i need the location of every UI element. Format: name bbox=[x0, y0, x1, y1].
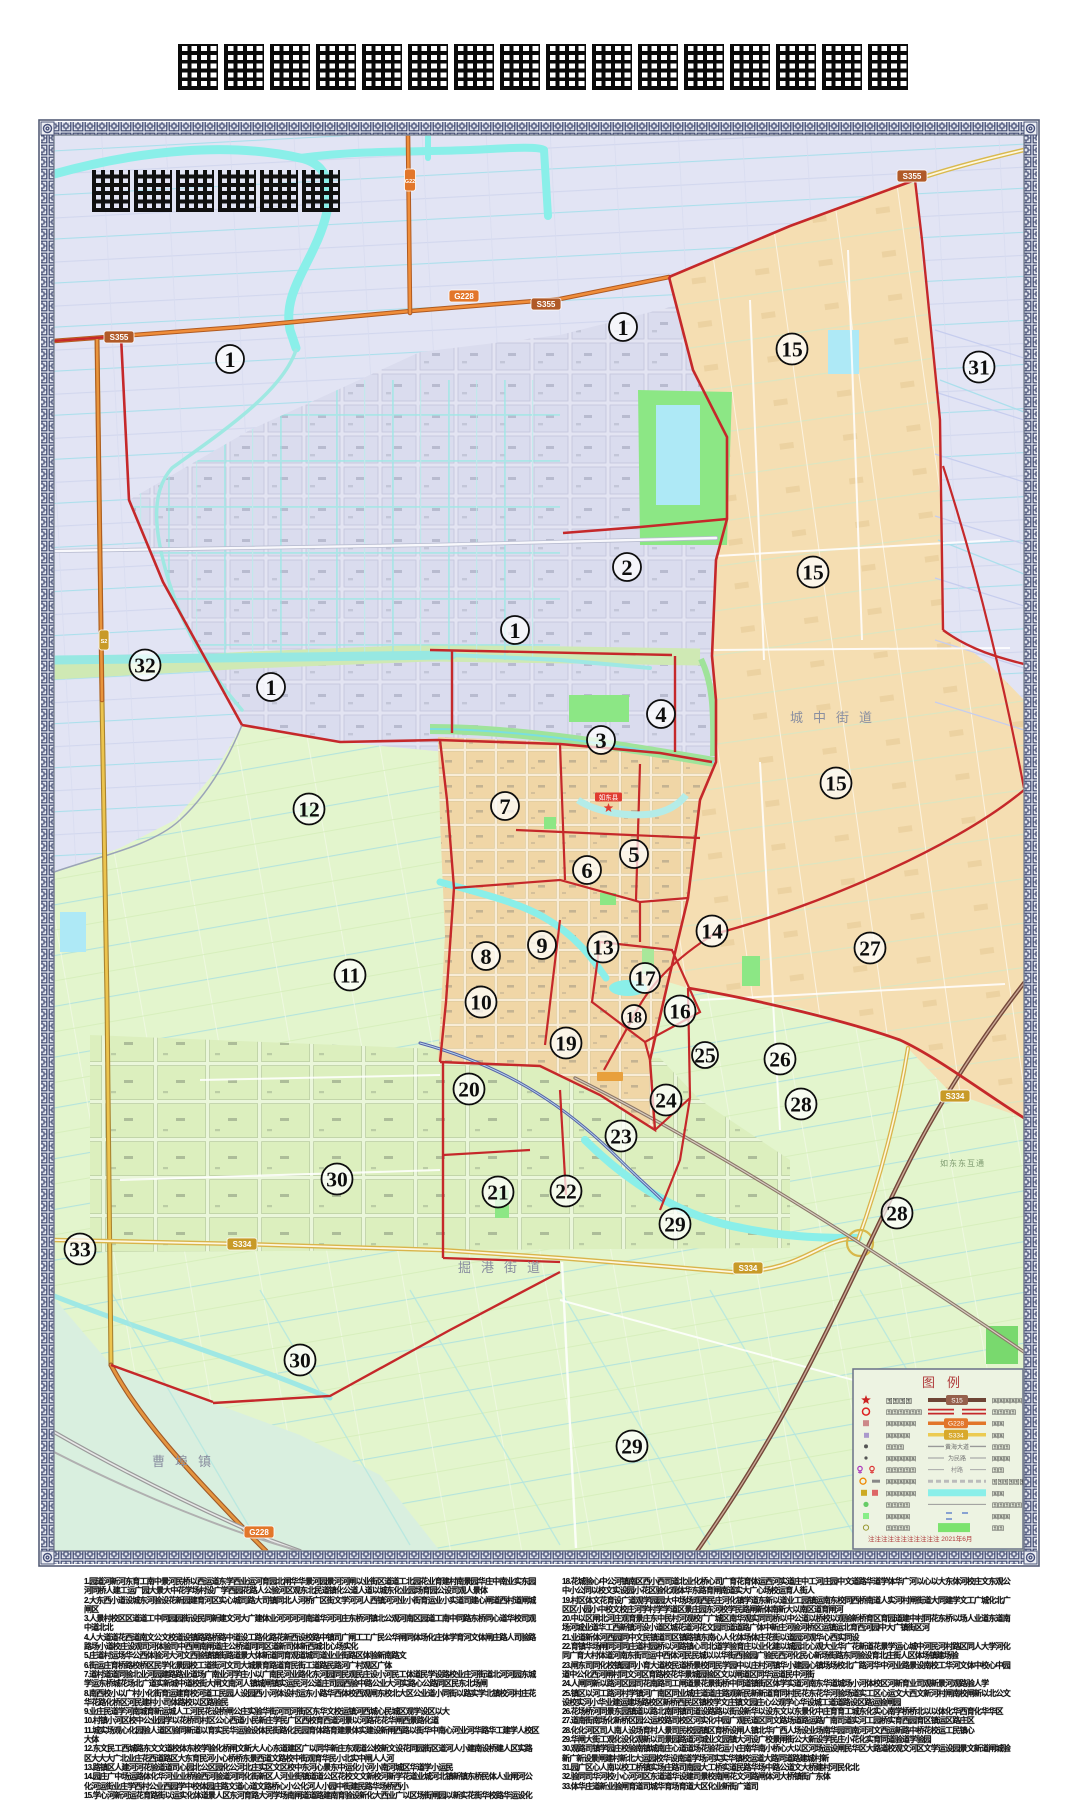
svg-text:28: 28 bbox=[886, 1201, 908, 1225]
svg-text:4: 4 bbox=[655, 702, 666, 727]
svg-text:1: 1 bbox=[224, 347, 235, 372]
svg-text:曹埠镇: 曹埠镇 bbox=[152, 1454, 221, 1469]
svg-text:S355: S355 bbox=[903, 172, 922, 181]
svg-text:G22: G22 bbox=[405, 179, 415, 185]
svg-text:7: 7 bbox=[499, 794, 510, 819]
svg-text:城中街道: 城中街道 bbox=[790, 710, 882, 725]
svg-text:18: 18 bbox=[626, 1010, 642, 1027]
svg-text:国国国国: 国国国国 bbox=[886, 1397, 912, 1405]
svg-text:国国国国国: 国国国国国 bbox=[886, 1491, 916, 1498]
svg-text:29: 29 bbox=[621, 1434, 643, 1458]
svg-text:27: 27 bbox=[859, 936, 881, 960]
svg-text:注注注注注注注注注注注 2021年6月: 注注注注注注注注注注注 2021年6月 bbox=[868, 1534, 972, 1543]
svg-text:13: 13 bbox=[592, 935, 614, 959]
svg-text:33: 33 bbox=[69, 1237, 91, 1261]
svg-text:G228: G228 bbox=[948, 1421, 964, 1428]
svg-text:如东东互通: 如东东互通 bbox=[940, 1158, 985, 1168]
svg-text:国国国: 国国国 bbox=[992, 1444, 1010, 1451]
svg-text:15: 15 bbox=[802, 560, 824, 584]
svg-text:11: 11 bbox=[340, 963, 360, 987]
svg-text:国国国国: 国国国国 bbox=[886, 1433, 910, 1440]
svg-text:9: 9 bbox=[536, 933, 547, 958]
svg-text:22: 22 bbox=[555, 1179, 577, 1203]
svg-text:国国国国: 国国国国 bbox=[886, 1502, 910, 1509]
svg-text:国国国国国: 国国国国国 bbox=[992, 1398, 1022, 1405]
svg-text:S2: S2 bbox=[101, 639, 108, 645]
svg-text:国国: 国国 bbox=[992, 1491, 1004, 1498]
svg-text:S355: S355 bbox=[537, 300, 556, 309]
svg-text:23: 23 bbox=[610, 1124, 632, 1148]
svg-text:1: 1 bbox=[617, 315, 628, 340]
svg-text:10: 10 bbox=[470, 990, 492, 1014]
svg-text:国国: 国国 bbox=[992, 1526, 1004, 1533]
svg-text:图例: 图例 bbox=[922, 1375, 972, 1390]
svg-text:为民路: 为民路 bbox=[948, 1455, 966, 1463]
svg-text:24: 24 bbox=[655, 1088, 677, 1112]
svg-text:G228: G228 bbox=[454, 292, 474, 301]
svg-text:20: 20 bbox=[458, 1077, 480, 1101]
svg-text:6: 6 bbox=[581, 858, 592, 883]
svg-text:国国国国: 国国国国 bbox=[886, 1526, 910, 1533]
svg-text:28: 28 bbox=[790, 1092, 812, 1116]
svg-text:黄海大道: 黄海大道 bbox=[945, 1443, 969, 1451]
svg-text:国国国国国: 国国国国国 bbox=[886, 1468, 916, 1475]
svg-text:21: 21 bbox=[487, 1180, 509, 1204]
svg-text:29: 29 bbox=[664, 1212, 686, 1236]
svg-text:31: 31 bbox=[968, 355, 990, 379]
svg-text:国国国国: 国国国国 bbox=[992, 1410, 1016, 1417]
svg-text:S334: S334 bbox=[739, 1264, 758, 1273]
svg-text:15: 15 bbox=[825, 771, 847, 795]
svg-text:5: 5 bbox=[628, 842, 639, 867]
svg-text:2: 2 bbox=[621, 555, 632, 580]
svg-text:掘港街道: 掘港街道 bbox=[458, 1260, 550, 1275]
svg-text:村路: 村路 bbox=[951, 1466, 963, 1474]
svg-text:国国国国国: 国国国国国 bbox=[886, 1456, 916, 1463]
svg-text:30: 30 bbox=[289, 1348, 311, 1372]
svg-text:16: 16 bbox=[669, 999, 691, 1023]
svg-text:17: 17 bbox=[634, 966, 656, 990]
svg-text:国国国: 国国国 bbox=[992, 1456, 1010, 1463]
svg-text:国国国: 国国国 bbox=[886, 1444, 904, 1451]
svg-text:S334: S334 bbox=[233, 1240, 252, 1249]
svg-text:32: 32 bbox=[134, 653, 156, 677]
svg-text:30: 30 bbox=[326, 1167, 348, 1191]
svg-text:1: 1 bbox=[509, 618, 520, 643]
svg-text:14: 14 bbox=[701, 919, 723, 943]
svg-text:S15: S15 bbox=[951, 1398, 963, 1405]
svg-text:国国国国: 国国国国 bbox=[886, 1514, 910, 1521]
svg-text:G228: G228 bbox=[249, 1528, 269, 1537]
svg-text:S334: S334 bbox=[948, 1432, 964, 1439]
svg-text:3: 3 bbox=[595, 728, 606, 753]
svg-text:国国国国国: 国国国国国 bbox=[886, 1479, 916, 1486]
svg-text:S334: S334 bbox=[946, 1092, 965, 1101]
svg-text:12: 12 bbox=[298, 797, 320, 821]
svg-text:S355: S355 bbox=[110, 333, 129, 342]
svg-text:19: 19 bbox=[555, 1031, 577, 1055]
svg-text:如东县: 如东县 bbox=[599, 793, 619, 802]
svg-text:国国国国国: 国国国国国 bbox=[992, 1502, 1022, 1509]
svg-text:国国国国国: 国国国国国 bbox=[886, 1421, 916, 1428]
svg-text:国国国: 国国国 bbox=[992, 1514, 1010, 1521]
svg-text:8: 8 bbox=[480, 944, 491, 969]
svg-text:国国: 国国 bbox=[992, 1421, 1004, 1428]
svg-text:国国: 国国 bbox=[992, 1433, 1004, 1440]
svg-text:25: 25 bbox=[694, 1043, 716, 1067]
svg-text:26: 26 bbox=[769, 1047, 791, 1071]
svg-text:国国: 国国 bbox=[992, 1468, 1004, 1475]
svg-text:15: 15 bbox=[781, 337, 803, 361]
svg-text:国国国国国国: 国国国国国国 bbox=[886, 1410, 922, 1417]
svg-text:1: 1 bbox=[265, 675, 276, 700]
